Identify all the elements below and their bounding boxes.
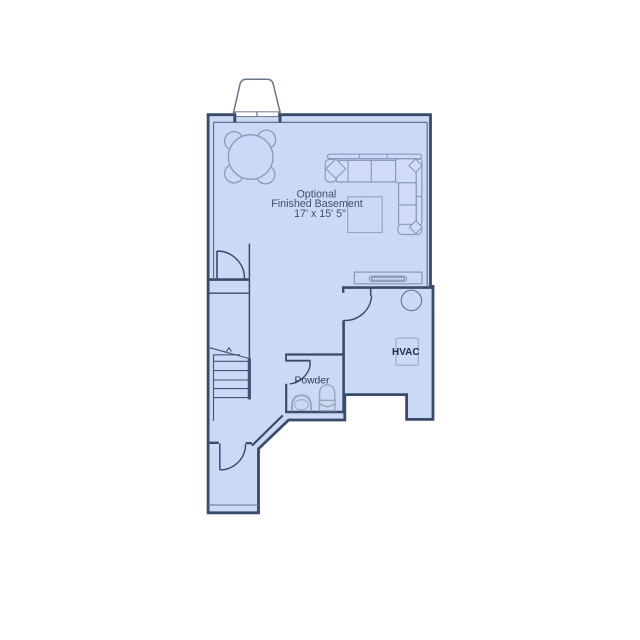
svg-text:Powder: Powder (295, 376, 330, 387)
svg-text:17' x 15' 5": 17' x 15' 5" (294, 208, 346, 220)
svg-text:HVAC: HVAC (392, 347, 420, 358)
